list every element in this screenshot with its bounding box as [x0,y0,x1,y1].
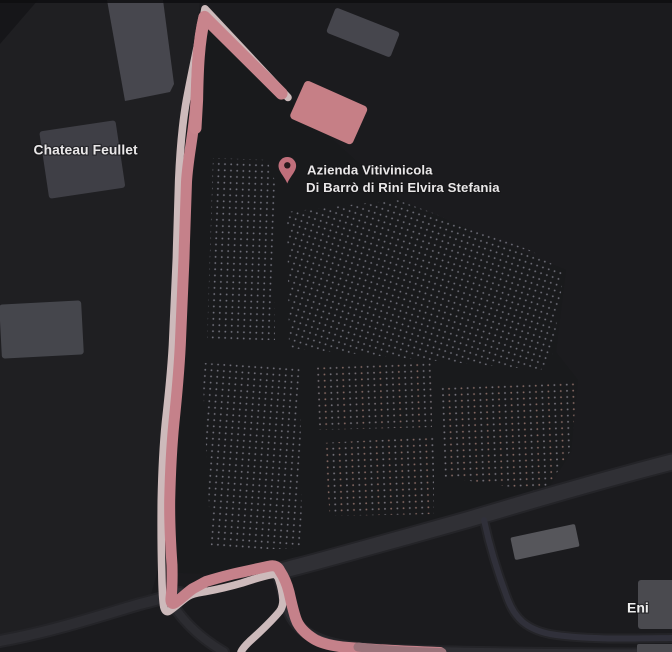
svg-text:Azienda Vitivinicola: Azienda Vitivinicola [307,163,433,178]
svg-text:Eni: Eni [627,600,649,616]
svg-text:Chateau Feullet: Chateau Feullet [34,143,139,158]
svg-text:Di Barrò di Rini Elvira Stefan: Di Barrò di Rini Elvira Stefania [306,180,500,195]
